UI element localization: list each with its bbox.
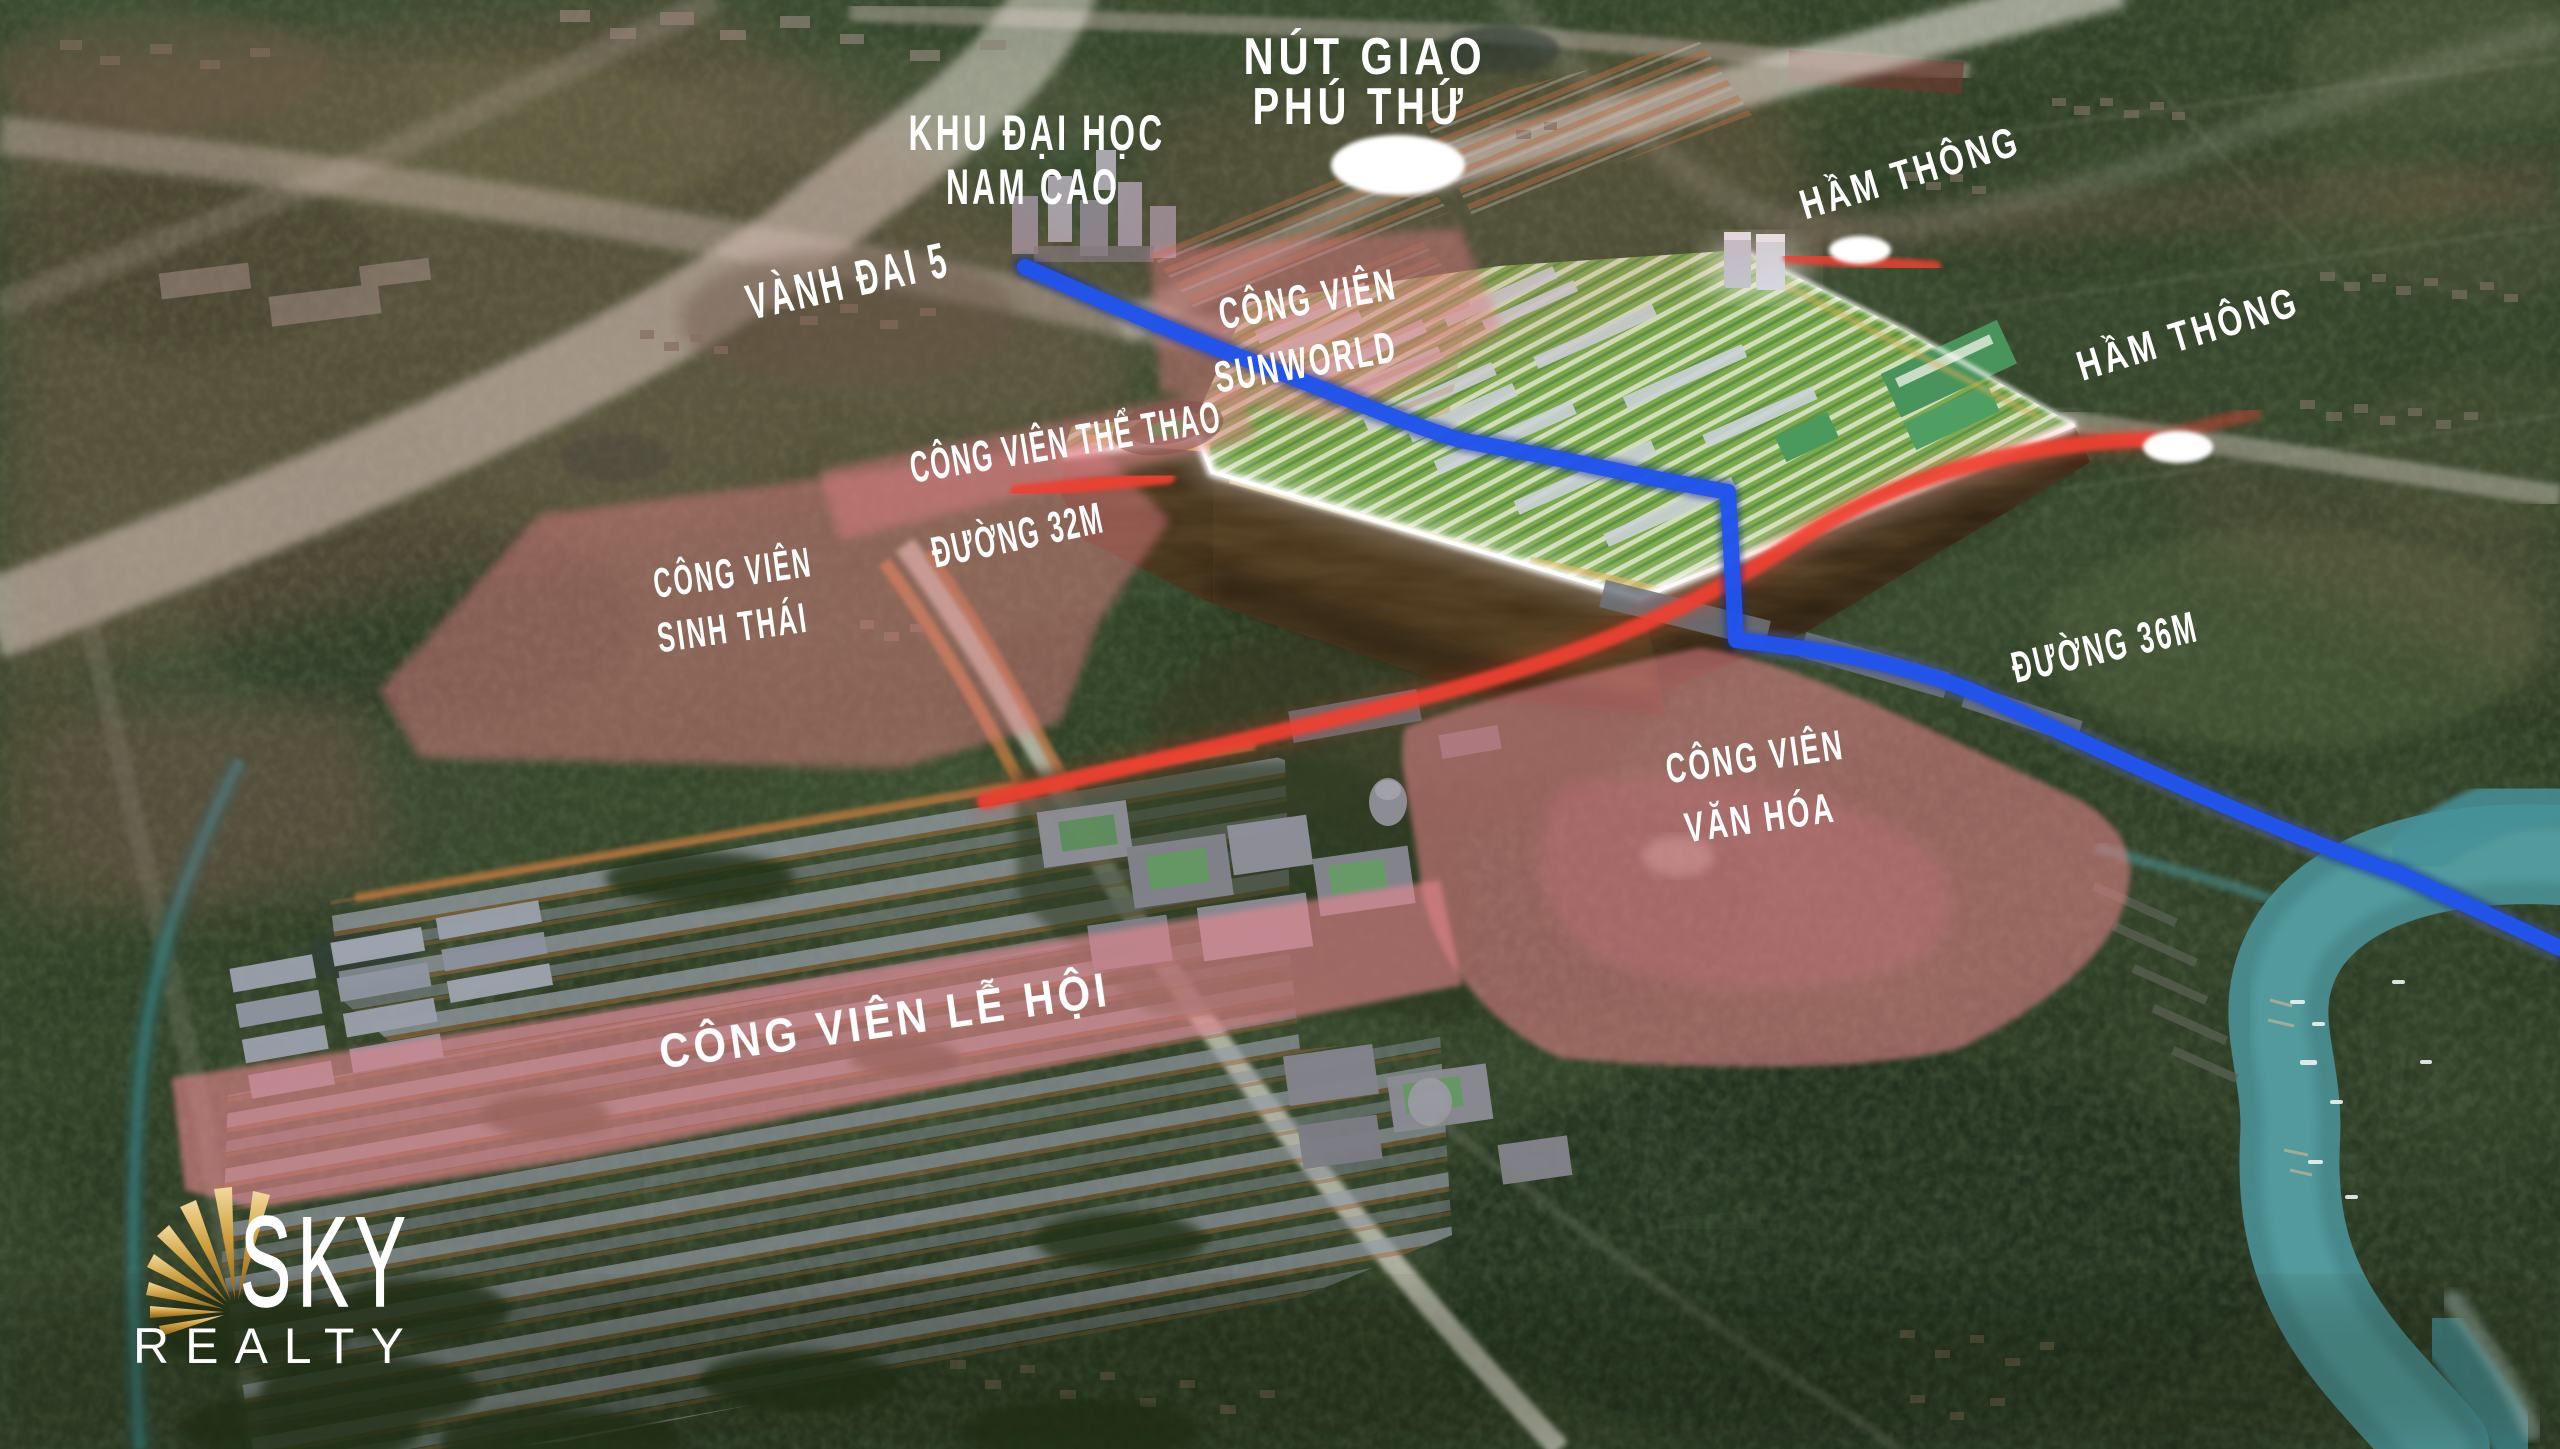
svg-text:KHU ĐẠI HỌC: KHU ĐẠI HỌC (909, 105, 1166, 161)
svg-text:R E A L T: R E A L T (640, 1158, 1755, 1232)
svg-text:REALTY: REALTY (133, 1318, 420, 1374)
svg-text:PHÚ THỨ: PHÚ THỨ (1253, 78, 1468, 136)
svg-text:NAM CAO: NAM CAO (946, 159, 1120, 215)
svg-text:R E A L T Y: R E A L T Y (2010, 1146, 2560, 1199)
svg-text:SKY: SKY (240, 1191, 412, 1334)
